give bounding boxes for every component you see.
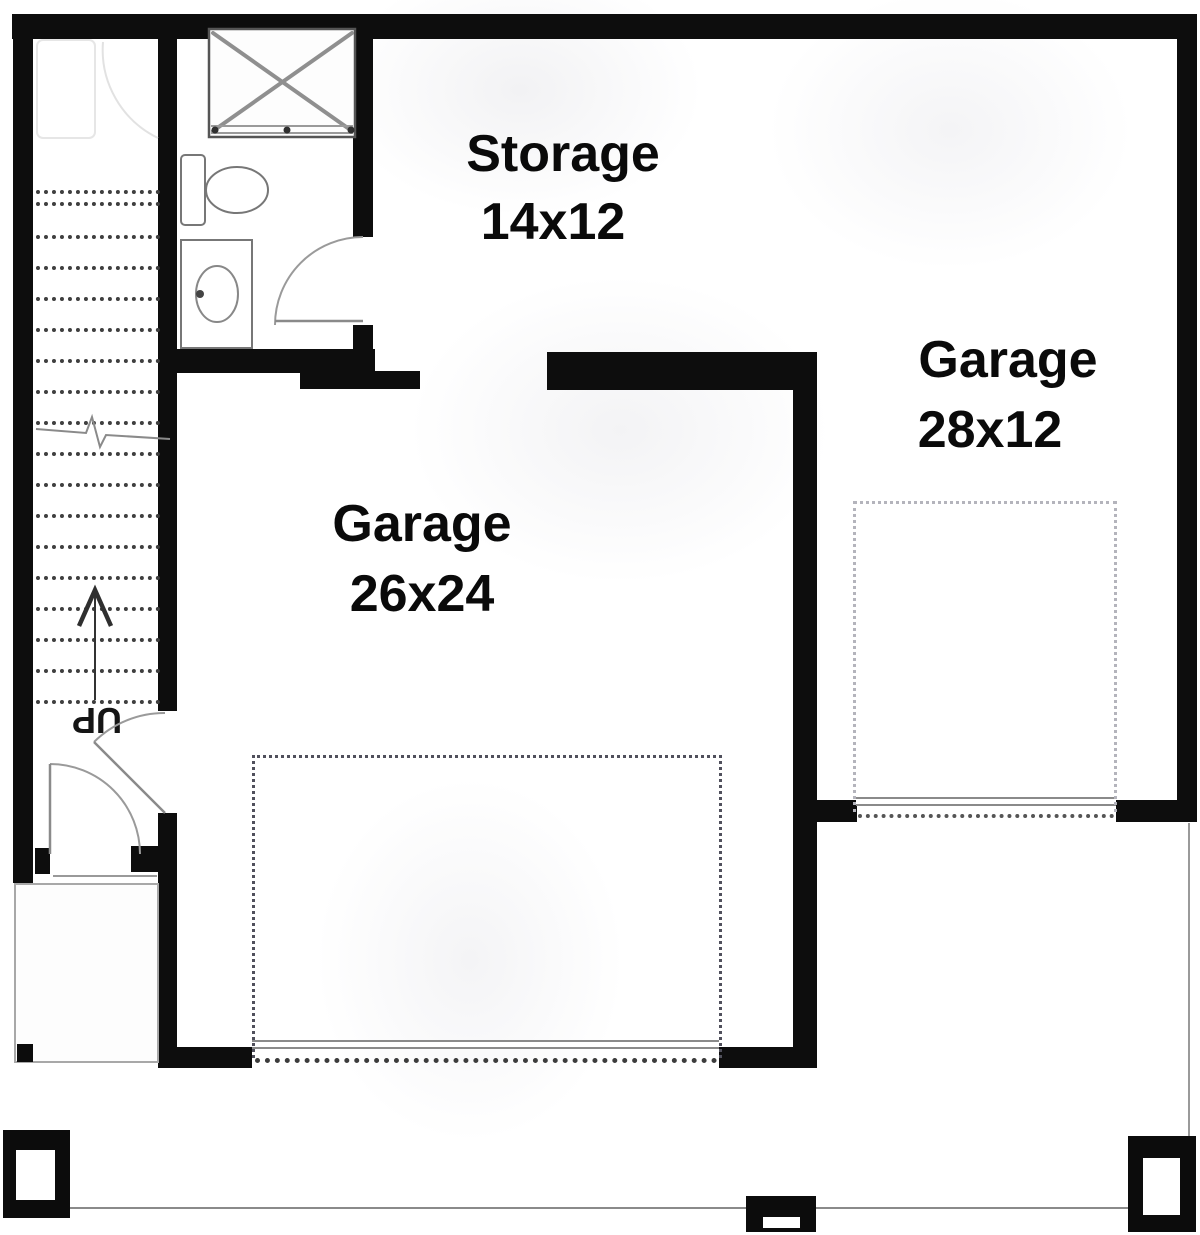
stoop-post	[17, 1044, 33, 1062]
right-garage-dims: 28x12	[840, 404, 1140, 456]
entry-stoop	[14, 883, 159, 1063]
wall-garage-top-right	[547, 352, 817, 390]
garage-door-main-dotted-line	[255, 1058, 717, 1063]
stair-tread-line	[36, 390, 160, 394]
porch-post-left-center	[16, 1150, 55, 1200]
stair-tread-line	[36, 359, 160, 363]
main-garage-dims: 26x24	[272, 568, 572, 620]
stair-tread-line	[36, 607, 160, 611]
wall-main-garage-bottom-right	[719, 1047, 817, 1068]
wall-bathroom-right	[353, 29, 373, 237]
storage-room-label: Storage	[413, 128, 713, 180]
parking-outline-right-garage	[853, 501, 1117, 812]
stair-tread-line	[36, 669, 160, 673]
stair-tread-line	[36, 545, 160, 549]
wall-garage-divider	[793, 352, 817, 1068]
wall-main-garage-bottom-left	[158, 1047, 252, 1068]
porch-post-middle	[746, 1196, 816, 1232]
stair-tread-line	[36, 328, 160, 332]
stair-tread-line	[36, 514, 160, 518]
stairs-up-label: UP	[68, 700, 126, 738]
stair-tread-line	[36, 421, 160, 425]
stair-tread-line	[36, 297, 160, 301]
porch-post-middle-center	[763, 1217, 800, 1228]
wall-right-exterior	[1177, 30, 1197, 822]
floor-plan: UP	[0, 0, 1200, 1235]
wall-garage-top-left	[300, 371, 420, 389]
main-garage-label: Garage	[272, 498, 572, 550]
porch-post-right-center	[1143, 1158, 1180, 1215]
right-garage-label: Garage	[858, 334, 1158, 386]
garage-door-right-dotted-line	[858, 814, 1114, 818]
stair-tread-line	[36, 483, 160, 487]
porch-edge-line	[70, 1207, 1190, 1209]
storage-room-dims: 14x12	[403, 196, 703, 248]
wall-right-garage-bottom-stub-left	[817, 800, 857, 822]
stair-tread-line	[36, 452, 160, 456]
stair-tread-line	[36, 202, 160, 206]
stair-tread-line	[36, 266, 160, 270]
stair-tread-line	[36, 638, 160, 642]
wall-hall-bottom-stub	[131, 846, 158, 872]
porch-post-left	[3, 1130, 70, 1218]
porch-post-right	[1128, 1136, 1196, 1232]
wall-left-exterior	[13, 30, 33, 883]
wall-bathroom-bottom	[163, 349, 375, 373]
wall-stair-divider-lower	[158, 813, 177, 1068]
wall-right-garage-bottom-stub-right	[1116, 800, 1197, 822]
wall-entry-door-jamb	[35, 848, 50, 874]
entry-threshold-line	[53, 875, 157, 877]
parking-outline-main-garage	[252, 755, 722, 1058]
stair-tread-line	[36, 576, 160, 580]
stair-tread-line	[36, 235, 160, 239]
wall-top-exterior	[12, 14, 1197, 39]
stair-tread-line	[36, 190, 160, 194]
